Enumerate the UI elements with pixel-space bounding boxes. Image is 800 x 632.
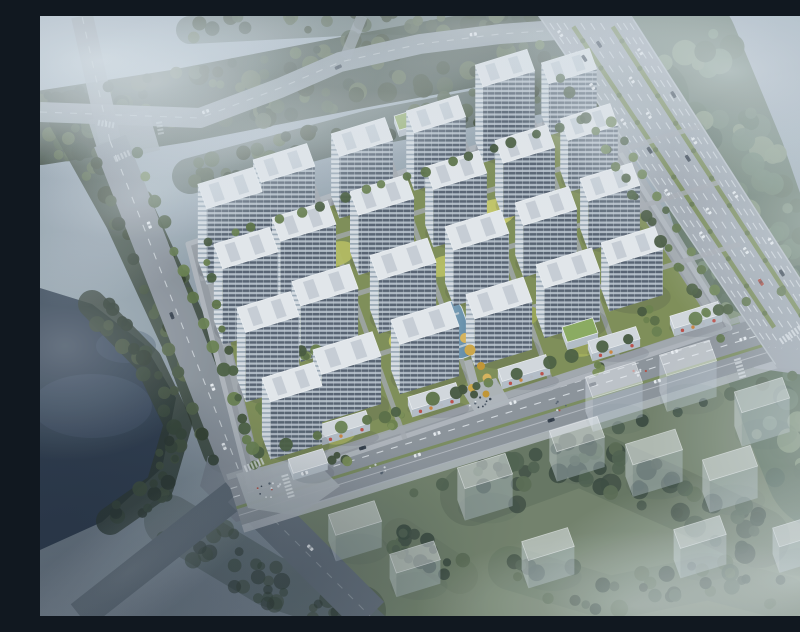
aerial-render-figure: Aerial rendering of a residential develo… — [40, 16, 800, 616]
cool-color-cast — [40, 16, 800, 616]
aerial-site-rendering — [40, 16, 800, 616]
